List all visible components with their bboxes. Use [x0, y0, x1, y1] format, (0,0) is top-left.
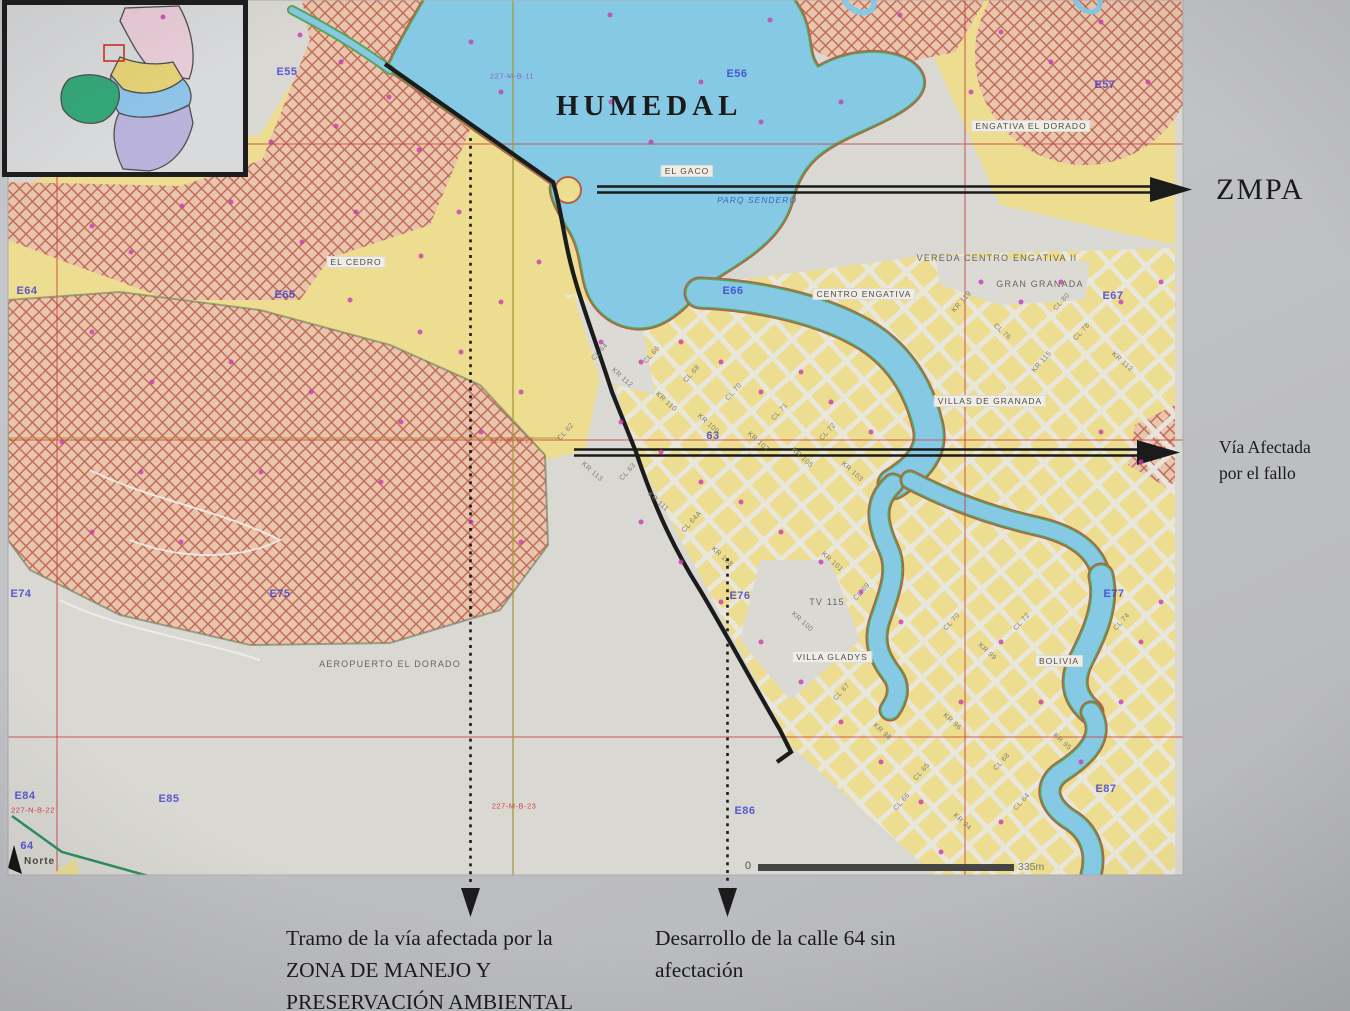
map-dot [859, 590, 864, 595]
map-area-label: GRAN GRANADA [996, 279, 1083, 289]
map-dot [768, 18, 773, 23]
caption-left-line3: PRESERVACIÓN AMBIENTAL [286, 986, 573, 1011]
scale-bar-end: 335m [1018, 861, 1044, 873]
map-dot [879, 760, 884, 765]
map-dot [339, 60, 344, 65]
map-dot [348, 298, 353, 303]
map-dot [939, 850, 944, 855]
map-dot [719, 600, 724, 605]
map-dot [269, 140, 274, 145]
map-dot [639, 520, 644, 525]
map-dot [999, 820, 1004, 825]
map-dot [839, 720, 844, 725]
north-label: Norte [24, 856, 55, 867]
map-area-label: PARQ SENDERO [717, 195, 797, 205]
map-dot [90, 330, 95, 335]
graticule-label: 227-M-B-11 [490, 72, 534, 81]
map-dot [298, 33, 303, 38]
map-area-label: TV 115 [809, 597, 845, 607]
inset-locator-map [2, 0, 248, 177]
map-dot [919, 800, 924, 805]
map-dot [519, 390, 524, 395]
map-dot [679, 560, 684, 565]
map-dot [1119, 300, 1124, 305]
map-dot [959, 700, 964, 705]
via-affected-line1: Vía Afectada [1219, 434, 1311, 460]
map-dot [739, 500, 744, 505]
map-dot [399, 420, 404, 425]
grid-cell-label: E65 [274, 289, 295, 301]
map-dot [537, 260, 542, 265]
map-dot [969, 90, 974, 95]
map-dot [179, 540, 184, 545]
caption-right-line2: afectación [655, 954, 896, 986]
map-area-label: EL CEDRO [326, 256, 385, 268]
map-dot [180, 204, 185, 209]
caption-right-line1: Desarrollo de la calle 64 sin [655, 922, 896, 954]
map-dot [417, 148, 422, 153]
map-dot [1119, 700, 1124, 705]
map-dot [1049, 60, 1054, 65]
map-dot [469, 520, 474, 525]
map-area-label: AEROPUERTO EL DORADO [319, 659, 461, 669]
map-dot [229, 200, 234, 205]
map-dot [979, 280, 984, 285]
caption-left-line1: Tramo de la vía afectada por la [286, 922, 573, 954]
map-area-label: BOLIVIA [1035, 655, 1083, 667]
map-dot [1019, 300, 1024, 305]
map-photo: EL GACOENGATIVA EL DORADOCENTRO ENGATIVA… [0, 0, 1350, 1011]
grid-cell-label: E55 [276, 66, 297, 78]
map-dot [799, 370, 804, 375]
grid-cell-label: E76 [729, 590, 750, 602]
map-dot [639, 360, 644, 365]
down-arrowhead-right [718, 888, 737, 917]
map-dot [999, 30, 1004, 35]
down-arrowhead-left [461, 888, 480, 917]
map-dot [229, 360, 234, 365]
map-dot [334, 124, 339, 129]
map-dot [479, 430, 484, 435]
graticule-label: 227-N-B-22 [11, 806, 55, 815]
map-dot [1039, 700, 1044, 705]
map-dot [418, 330, 423, 335]
map-dot [699, 480, 704, 485]
map-dot [869, 430, 874, 435]
map-dot [354, 210, 359, 215]
inset-map-graphic [7, 5, 243, 172]
map-dot [999, 640, 1004, 645]
map-dot [60, 440, 65, 445]
map-dot [1159, 600, 1164, 605]
map-area-label: VILLAS DE GRANADA [934, 395, 1046, 407]
caption-left-line2: ZONA DE MANEJO Y [286, 954, 573, 986]
grid-cell-label: E86 [734, 805, 755, 817]
grid-cell-label: E66 [722, 285, 743, 297]
map-dot [379, 480, 384, 485]
grid-cell-label: E84 [14, 790, 35, 802]
map-dot [699, 80, 704, 85]
map-dot [1059, 280, 1064, 285]
map-dot [679, 340, 684, 345]
caption-tramo-zmpa: Tramo de la vía afectada por la ZONA DE … [286, 922, 573, 1011]
map-dot [659, 450, 664, 455]
map-dot [1146, 80, 1151, 85]
map-area-label: EL GACO [661, 165, 713, 177]
map-dot [779, 530, 784, 535]
grid-cell-label: E75 [269, 588, 290, 600]
map-dot [499, 90, 504, 95]
grid-cell-label: E87 [1095, 783, 1116, 795]
humedal-title: HUMEDAL [556, 90, 742, 123]
via-affected-label: Vía Afectada por el fallo [1219, 434, 1311, 486]
map-dot [457, 210, 462, 215]
zmpa-label: ZMPA [1216, 173, 1305, 207]
map-dot [309, 390, 314, 395]
map-dot [1099, 20, 1104, 25]
map-dot [898, 13, 903, 18]
grid-cell-label: E77 [1103, 588, 1124, 600]
map-dot [608, 13, 613, 18]
map-dot [619, 420, 624, 425]
scale-bar [758, 864, 1014, 871]
map-dot [829, 400, 834, 405]
graticule-label: 227-M-B-21 [490, 436, 535, 445]
map-dot [899, 620, 904, 625]
map-dot [719, 360, 724, 365]
map-dot [1139, 640, 1144, 645]
grid-cell-label: E85 [158, 793, 179, 805]
map-dot [90, 530, 95, 535]
map-dot [819, 560, 824, 565]
map-dot [759, 120, 764, 125]
grid-cell-label: E64 [16, 285, 37, 297]
grid-cell-label: E56 [726, 68, 747, 80]
via-affected-line2: por el fallo [1219, 460, 1311, 486]
map-dot [129, 250, 134, 255]
map-dot [1079, 760, 1084, 765]
graticule-label: 227-M-B-23 [492, 802, 537, 811]
map-dot [459, 350, 464, 355]
map-dot [799, 680, 804, 685]
map-dot [1159, 280, 1164, 285]
inset-region-west [61, 75, 119, 124]
map-dot [499, 300, 504, 305]
map-dot [519, 540, 524, 545]
map-dot [759, 640, 764, 645]
caption-calle64: Desarrollo de la calle 64 sin afectación [655, 922, 896, 986]
map-dot [387, 95, 392, 100]
map-dot [469, 40, 474, 45]
map-dot [649, 140, 654, 145]
map-dot [599, 340, 604, 345]
map-dot [1139, 460, 1144, 465]
grid-cell-label: 64 [20, 840, 33, 852]
map-dot [419, 254, 424, 259]
map-dot [759, 390, 764, 395]
map-dot [1099, 430, 1104, 435]
grid-cell-label: E74 [10, 588, 31, 600]
map-dot [150, 380, 155, 385]
grid-cell-label: E57 [1094, 79, 1115, 91]
map-dot [259, 470, 264, 475]
map-dot [90, 224, 95, 229]
map-dot [161, 15, 166, 20]
map-dot [139, 470, 144, 475]
map-area-label: ENGATIVA EL DORADO [971, 120, 1090, 132]
map-dot [300, 240, 305, 245]
map-area-label: CENTRO ENGATIVA [813, 288, 916, 300]
map-area-label: VEREDA CENTRO ENGATIVA II [917, 253, 1078, 263]
scale-bar-start: 0 [745, 860, 751, 872]
map-area-label: VILLA GLADYS [792, 651, 872, 663]
map-dot [839, 100, 844, 105]
